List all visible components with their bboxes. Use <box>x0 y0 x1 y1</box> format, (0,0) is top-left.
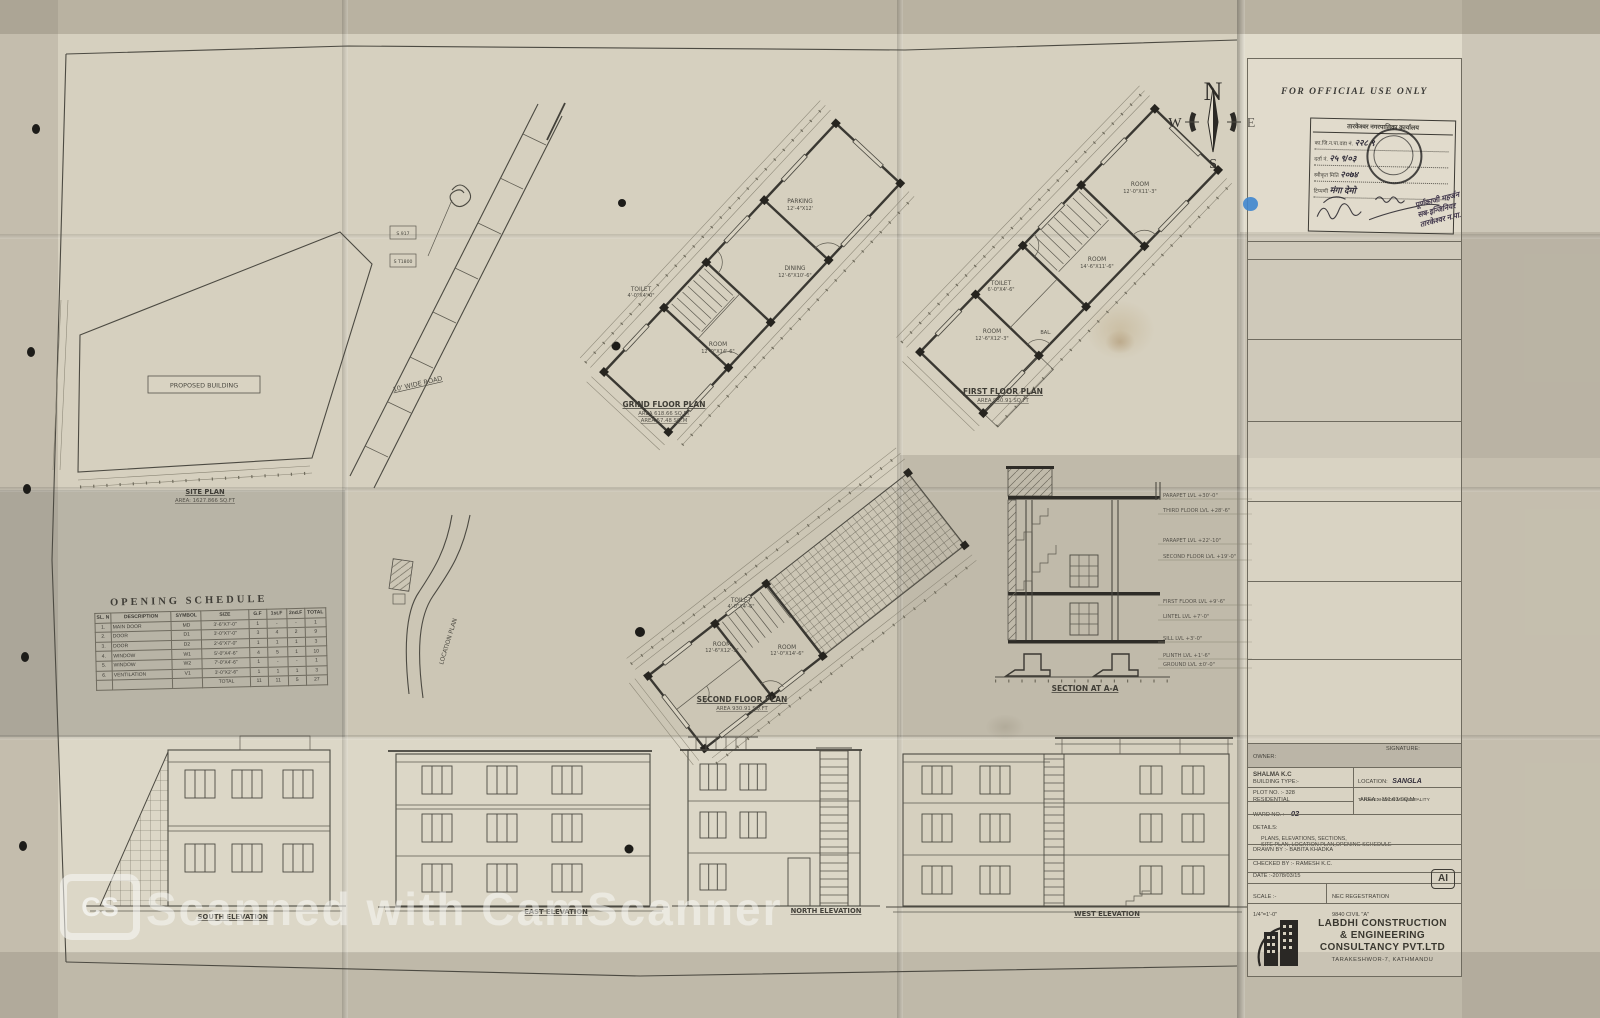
company-name-line3: CONSULTANCY PVT.LTD <box>1304 942 1461 954</box>
room-size: 12'-6"X12'-3" <box>705 648 738 654</box>
area-value: AREA :- 151.03 SQ.M. <box>1360 797 1416 803</box>
room-size: 6'-0"X4'-6" <box>987 287 1014 293</box>
scale-label: SCALE :- <box>1253 894 1276 900</box>
camscanner-watermark: Scanned with CamScanner <box>146 882 783 936</box>
stamp-row-label: का.जि.न.पा.वडा नं. <box>1315 141 1354 148</box>
details-label: DETAILS: <box>1253 825 1277 831</box>
date-value: DATE :-2078/03/15 <box>1253 873 1300 879</box>
room-label: ROOM <box>709 342 727 348</box>
room-size: 12'-6"X12'-3" <box>975 336 1008 342</box>
room-size: 12'-0"X11'-3" <box>1123 189 1156 195</box>
north-elevation <box>672 737 880 906</box>
section-drawing: PARAPET LVL +30'-0" THIRD FLOOR LVL +28'… <box>995 466 1252 681</box>
signature-label: SIGNATURE: <box>1386 746 1420 752</box>
spiral-mark <box>450 185 470 207</box>
stamp-row-value: २०७४ <box>1340 169 1358 179</box>
level-label: GROUND LVL ±0'-0" <box>1163 662 1215 668</box>
room-label: ROOM <box>983 329 1001 335</box>
second-plan-title: SECOND FLOOR PLAN <box>697 695 788 704</box>
ground-plan-area2: AREA 57.48 SQ.M <box>641 418 688 424</box>
official-use-title: FOR OFFICIAL USE ONLY <box>1248 87 1461 97</box>
location-plan: LOCATION PLAN <box>389 515 470 698</box>
second-floor-plan <box>616 448 981 775</box>
opening-schedule-table: SL. NDESCRIPTION SYMBOLSIZE G.F1st.F 2nd… <box>94 607 328 690</box>
room-size: 12'-0"X14'-6" <box>770 651 803 657</box>
drawn-by: DRAWN BY :- BABITA KHADKA <box>1253 847 1333 853</box>
proposed-building-label: PROPOSED BUILDING <box>170 382 238 390</box>
site-marker-2: S T1800 <box>394 259 413 265</box>
plot-number: PLOT NO. :- 328 <box>1253 790 1295 796</box>
columns <box>599 118 905 437</box>
room-label: DINING <box>784 266 806 272</box>
camscanner-logo: CS <box>60 874 140 940</box>
section-levels: PARAPET LVL +30'-0" THIRD FLOOR LVL +28'… <box>1158 493 1252 668</box>
level-label: PARAPET LVL +22'-10" <box>1163 538 1221 544</box>
room-size: 14'-6"X11'-6" <box>1080 264 1113 270</box>
level-label: PARAPET LVL +30'-0" <box>1163 493 1218 499</box>
room-size: 4'-0"X4'-0" <box>627 293 654 299</box>
room-size: 12'-0"X14'-6" <box>701 349 734 355</box>
location-value: SANGLA <box>1392 778 1422 785</box>
ground-plan-area1: AREA 618.66 SQ.FT <box>638 411 690 417</box>
building-type-label: BUILDING TYPE:- <box>1253 779 1299 785</box>
level-label: SECOND FLOOR LVL +19'-0" <box>1163 554 1236 560</box>
ai-badge: AI <box>1431 869 1455 889</box>
site-marker-1: S 917 <box>396 231 409 237</box>
section-title: SECTION AT A-A <box>1052 684 1119 693</box>
level-label: PLINTH LVL +1'-6" <box>1163 653 1210 659</box>
level-label: FIRST FLOOR LVL +9'-6" <box>1163 599 1225 605</box>
site-plan-label: SITE PLAN <box>185 488 225 496</box>
room-size: 12'-6"X10'-6" <box>778 273 811 279</box>
north-elevation-label: NORTH ELEVATION <box>791 907 862 915</box>
location-plan-label: LOCATION PLAN <box>438 618 459 666</box>
owner-label: OWNER: <box>1253 754 1276 760</box>
ground-plan-title: GRIND FLOOR PLAN <box>623 400 706 409</box>
compass-west: W <box>1168 116 1182 131</box>
west-elevation-label: WEST ELEVATION <box>1074 910 1140 918</box>
level-label: SILL LVL +3'-0" <box>1163 636 1202 642</box>
level-label: LINTEL LVL +7'-0" <box>1163 614 1209 620</box>
opening-schedule: OPENING SCHEDULE SL. NDESCRIPTION SYMBOL… <box>94 592 336 691</box>
room-size: 12'-4"X12' <box>787 206 813 212</box>
scanned-blueprint-sheet: PROPOSED BUILDING 10' WIDE ROAD S 917 S … <box>0 0 1600 1018</box>
company-address: TARAKESHWOR-7, KATHMANDU <box>1304 957 1461 963</box>
road <box>350 103 565 488</box>
company-name-line2: & ENGINEERING <box>1304 930 1461 942</box>
punch-holes <box>19 124 645 854</box>
compass-rose: N W E S <box>1168 77 1255 172</box>
room-label: PARKING <box>787 199 813 205</box>
nec-registration-line1: NEC REGESTRATION <box>1332 894 1389 900</box>
first-floor-plan <box>887 86 1236 441</box>
site-plan-area: AREA: 1627.866 SQ.FT <box>175 498 236 504</box>
location-label: LOCATION: <box>1358 779 1388 785</box>
room-label: ROOM <box>1088 257 1106 263</box>
site-plan: PROPOSED BUILDING 10' WIDE ROAD S 917 S … <box>53 103 565 504</box>
footing <box>1006 654 1050 676</box>
right-column: FOR OFFICIAL USE ONLY तारकेश्वर नगरपालिक… <box>1247 58 1462 977</box>
room-label: ROOM <box>1131 182 1149 188</box>
blue-sticker-dot <box>1243 197 1258 211</box>
compass-south: S <box>1209 157 1217 172</box>
room-size: 4'-0"X4'-6" <box>727 604 754 610</box>
west-elevation <box>886 738 1248 912</box>
level-label: THIRD FLOOR LVL +28'-6" <box>1162 508 1230 514</box>
first-plan-area: AREA 930.91 SQ.FT <box>977 398 1029 404</box>
stamp-row-label: दर्ता नं. <box>1314 157 1328 163</box>
stamp-row-value: २५ ९/०३ <box>1329 153 1356 164</box>
first-plan-title: FIRST FLOOR PLAN <box>963 387 1043 396</box>
footing <box>1094 654 1138 676</box>
company-logo <box>1256 912 1304 970</box>
company-name-line1: LABDHI CONSTRUCTION <box>1304 918 1461 930</box>
second-plan-area: AREA 930.91 SQ.FT <box>716 706 768 712</box>
room-label: BAL. <box>1040 330 1052 336</box>
checked-by: CHECKED BY :- RAMESH K.C. <box>1253 861 1332 867</box>
